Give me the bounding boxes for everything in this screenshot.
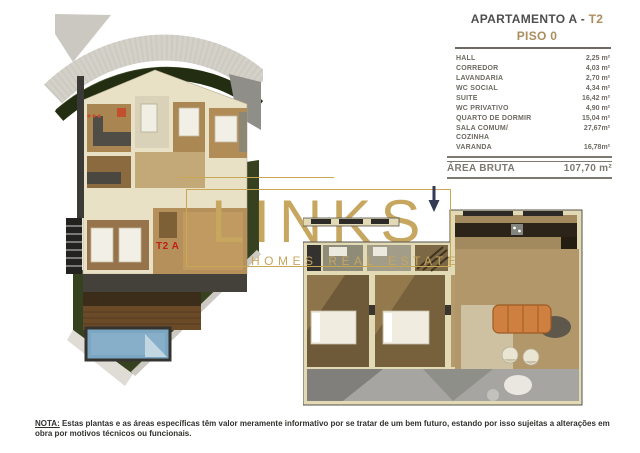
- sofa: [493, 305, 551, 333]
- unit-label-t2a: T2 A: [156, 241, 179, 252]
- title-unit: T2: [589, 12, 604, 26]
- table-row: SUITE16,42 m²: [456, 94, 610, 104]
- page-subtitle: PISO 0: [437, 29, 637, 43]
- bed: [91, 228, 113, 262]
- table-row: HALL2,25 m²: [456, 54, 610, 64]
- building-shadow: [83, 274, 247, 292]
- stove: [117, 108, 126, 117]
- total-label: ÁREA BRUTA: [447, 163, 515, 174]
- table-row: CORREDOR4,03 m²: [456, 64, 610, 74]
- cooktop: [511, 224, 523, 235]
- total-rule-bottom: [447, 177, 612, 179]
- bed: [179, 108, 199, 136]
- floorplan-page: LINKS T2 A: [0, 0, 640, 453]
- total-rule-top: [447, 156, 612, 162]
- disclaimer-note: NOTA: Estas plantas e as áreas específic…: [35, 419, 613, 440]
- total-value: 107,70 m²: [564, 163, 612, 174]
- header: APARTAMENTO A - T2 PISO 0: [437, 12, 637, 43]
- table-row: LAVANDARIA2,70 m²: [456, 74, 610, 84]
- page-title: APARTAMENTO A - T2: [437, 12, 637, 26]
- bathtub: [141, 104, 157, 132]
- note-prefix: NOTA:: [35, 419, 60, 428]
- bed: [215, 116, 237, 142]
- terrace-table: [504, 375, 532, 395]
- corridor: [135, 152, 205, 188]
- callout-rectangle: [186, 189, 451, 267]
- title-main: APARTAMENTO A -: [471, 12, 589, 26]
- table-row: WC SOCIAL4,34 m²: [456, 84, 610, 94]
- bed: [119, 228, 141, 262]
- areas-table: HALL2,25 m² CORREDOR4,03 m² LAVANDARIA2,…: [456, 54, 610, 153]
- total-row: ÁREA BRUTA 107,70 m²: [447, 163, 612, 174]
- table-row: SALA COMUM/ COZINHA27,67m²: [456, 124, 610, 143]
- down-arrow-icon: [427, 186, 441, 219]
- callout-line: [178, 177, 334, 178]
- table-row: VARANDA16,78m²: [456, 143, 610, 153]
- header-rule: [455, 47, 611, 49]
- table-row: WC PRIVATIVO4,90 m²: [456, 104, 610, 114]
- note-text: Estas plantas e as áreas específicas têm…: [35, 419, 610, 438]
- table-row: QUARTO DE DORMIR15,04 m²: [456, 114, 610, 124]
